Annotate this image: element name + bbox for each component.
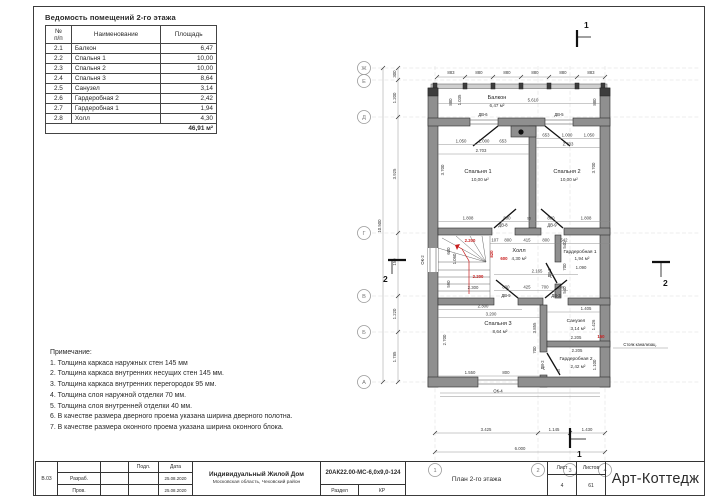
sheet-number: 4 (547, 474, 576, 496)
dim: 800 (503, 216, 511, 221)
red-dim: 2.200 (465, 238, 476, 243)
section-label: Раздел (320, 484, 358, 496)
title-block: В.03 Подл. Дата Разраб. 25.08.2020 Пров.… (35, 461, 705, 496)
tb-empty (57, 461, 100, 472)
dim: 2.300 (468, 285, 479, 290)
dim: 880 (448, 98, 453, 106)
window-label-ok2: ОК-2 (420, 255, 425, 265)
stamp-cell: В.03 (35, 461, 57, 496)
section-value: КР (358, 484, 405, 496)
dim: 700 (562, 263, 567, 271)
role-developer: Разраб. (57, 472, 100, 484)
axis-label: Е (362, 79, 366, 85)
room-area-ward1: 1,94 м² (575, 256, 590, 261)
room-area-bedroom3: 8,64 м² (493, 329, 508, 334)
section-number: 1 (584, 20, 589, 30)
dim-bottom-total: 6.000 (515, 446, 526, 451)
sheet-title: План 2-го этажа (405, 461, 547, 496)
dim: 1.060 (452, 253, 457, 264)
door-label-dv8: ДВ-8 (498, 223, 508, 228)
red-dim: 600 (500, 256, 508, 261)
dim-top: 880 (503, 70, 511, 75)
red-dim: 150 (597, 334, 605, 339)
door-label-dv9b: ДВ-9 (501, 293, 511, 298)
room-area-bath: 3,14 м² (571, 326, 586, 331)
axis-label: Г (362, 231, 365, 237)
dim: 2.205 (571, 335, 582, 340)
dim: 5.610 (528, 98, 539, 103)
door-label-dv6: ДВ-6 (478, 112, 488, 117)
date-value: 25.08.2020 (158, 484, 192, 496)
dim: 700 (532, 346, 537, 354)
dim: 1.000 (479, 139, 490, 144)
dim: 1.808 (463, 216, 474, 221)
dim: 800 (547, 216, 555, 221)
dim: 800 (542, 238, 550, 243)
red-dim: 2.200 (473, 274, 484, 279)
door-label-dv9: ДВ-9 (547, 223, 557, 228)
axis-label: Ж (361, 66, 367, 72)
dim: 107 (491, 238, 499, 243)
sheets-total: 61 (576, 474, 605, 496)
dim: 800 (502, 370, 510, 375)
dim: 3.700 (591, 162, 596, 173)
sewer-riser-note: Стояк канализац. (623, 342, 656, 347)
dim: 2.703 (476, 148, 487, 153)
room-name-bedroom2: Спальня 2 (553, 169, 580, 175)
room-area-hall: 4,30 м² (512, 256, 527, 261)
sign-header: Подл. (128, 461, 158, 472)
room-area-bedroom1: 10,00 м² (471, 177, 489, 182)
door-label-dv3: ДВ-3 (551, 293, 561, 298)
dim: 1.090 (576, 265, 587, 270)
dim: 1.550 (465, 370, 476, 375)
dim-left: 1.785 (392, 351, 397, 362)
section-number: 2 (663, 278, 668, 288)
date-value: 25.08.2020 (158, 472, 192, 484)
section-number: 1 (577, 449, 582, 459)
axis-label: А (362, 380, 366, 386)
window-label-ok4: ОК-4 (493, 389, 503, 394)
dim-top: 883 (447, 70, 455, 75)
left-dimension-chain: 300 1.200 3.925 150 1.220 1.785 10.500 (377, 66, 400, 384)
top-dimension-chain: 883 880 880 880 880 883 (435, 70, 607, 79)
dim: 653 (499, 139, 507, 144)
dim: 45 (557, 369, 561, 373)
company-name: Арт-Коттедж (605, 461, 705, 496)
red-dim: 820 (489, 250, 494, 258)
door-label-dv5: ДВ-5 (554, 112, 564, 117)
axis-bubbles-left: Ж Е Д Г В Б А (358, 62, 371, 389)
dim-bottom: 3.425 (481, 427, 492, 432)
dim: 1.050 (584, 133, 595, 138)
dim: 415 (523, 238, 531, 243)
role-checker: Пров. (57, 484, 100, 496)
dim: 3.200 (486, 312, 497, 317)
axis-label: Б (362, 330, 366, 336)
axis-label: Д (362, 115, 366, 121)
dim: 2.205 (572, 348, 583, 353)
dim: 2.703 (563, 142, 574, 147)
dim: 2.165 (532, 269, 543, 274)
dim: 1.405 (581, 306, 592, 311)
section-mark-1-top: 1 (577, 20, 591, 47)
room-name-bath: Санузел (567, 318, 586, 324)
axis-label: В (362, 294, 366, 300)
dim: 1.808 (581, 216, 592, 221)
sheet-label: Лист (547, 461, 576, 474)
dim-top: 880 (531, 70, 539, 75)
project-cell: Индивидуальный Жилой Дом Московская обла… (192, 461, 320, 496)
dim-left: 1.220 (392, 308, 397, 319)
dim-bottom: 1.430 (582, 427, 593, 432)
room-name-balcony: Балкон (488, 95, 507, 101)
room-name-ward1: Гардеробная 1 (563, 249, 596, 255)
dim: 800 (504, 238, 512, 243)
date-header: Дата (158, 461, 192, 472)
project-subtitle: Московская область, Чеховский район (213, 480, 301, 487)
dim-left-total: 10.500 (377, 219, 382, 233)
sign-cell (128, 484, 158, 496)
door-label-dv2a: ДВ-2 (547, 268, 552, 278)
dim-left: 300 (392, 70, 397, 78)
dim: 600 (446, 247, 451, 255)
tb-empty (100, 461, 128, 472)
section-number: 2 (383, 274, 388, 284)
room-name-ward2: Гардеробная 2 (559, 356, 592, 362)
dim: 800 (502, 285, 510, 290)
door-label-dv2b: ДВ-2 (540, 360, 545, 370)
dim: 3.855 (532, 322, 537, 333)
dim: 425 (523, 285, 531, 290)
room-name-bedroom1: Спальня 1 (464, 169, 491, 175)
dim: 2.700 (442, 334, 447, 345)
dim: 653 (542, 133, 550, 138)
room-area-balcony: 6,47 м² (490, 103, 505, 108)
dim: 880 (592, 98, 597, 106)
dim-left: 3.925 (392, 168, 397, 179)
dim-bottom: 1.145 (549, 427, 560, 432)
stairs (438, 236, 490, 298)
signature-cell (100, 472, 128, 484)
dim: 1.100 (592, 359, 597, 370)
dim-top: 880 (475, 70, 483, 75)
dim-top: 880 (559, 70, 567, 75)
dim-top: 883 (587, 70, 595, 75)
floor-plan-drawing: 883 880 880 880 880 883 300 1.200 3.925 … (0, 0, 711, 502)
project-title: Индивидуальный Жилой Дом (209, 471, 304, 480)
dim: 3.700 (440, 164, 445, 175)
dim-left: 1.200 (392, 92, 397, 103)
dim: 2.300 (478, 304, 489, 309)
room-name-bedroom3: Спальня 3 (484, 321, 511, 327)
room-area-ward2: 2,42 м² (571, 364, 586, 369)
doc-code: 20АК22.00-МС-6,0х9,0-124 (320, 461, 405, 484)
dim: 1.035 (457, 94, 462, 105)
walls (428, 83, 610, 397)
sign-cell (128, 472, 158, 484)
dim: 540 (562, 286, 567, 294)
section-mark-2-right: 2 (652, 262, 670, 288)
dim: 700 (541, 285, 549, 290)
dim: 590 (446, 280, 451, 288)
sheets-label: Листов (576, 461, 605, 474)
dim: 95 (527, 217, 531, 221)
dim: 540 (562, 241, 567, 249)
room-name-hall: Холл (512, 248, 525, 254)
room-area-bedroom2: 10,00 м² (560, 177, 578, 182)
signature-cell (100, 484, 128, 496)
dim: 1.426 (591, 319, 596, 330)
section-mark-1-bottom: 1 (570, 428, 586, 459)
dim: 1.050 (456, 139, 467, 144)
dim: 1.000 (562, 133, 573, 138)
